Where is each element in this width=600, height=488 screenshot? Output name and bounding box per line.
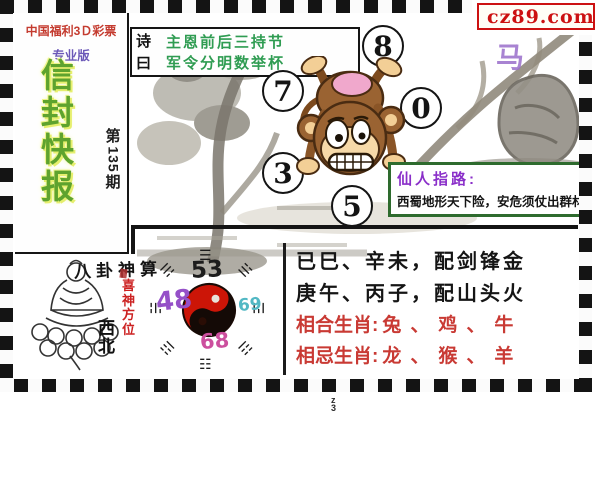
bagua-diagram: ☰ ☱ ☲ ☳ ☷ ☶ ☵ ☴ 53 48 69 68 [149,253,269,378]
bagua-number-bottom: 68 [199,328,230,354]
trigram-topright-icon: ☱ [236,261,255,280]
pairs-text-block: 已巳、辛未，配剑锋金 庚午、丙子，配山头火 相合生肖:兔、鸡、牛 相忌生肖:龙、… [296,246,578,372]
pointer-box: 仙人指路: 西蜀地形天下险，安危须仗出群材 [388,162,589,217]
frame-border-left [0,0,13,392]
trigram-bottomright-icon: ☳ [236,339,255,358]
stem-branch-line-1: 已巳、辛未，配剑锋金 [296,246,578,278]
issue-value: 135 [105,146,122,172]
org-name: 中国福利3Ｄ彩票 [15,22,127,39]
frame-border-right [579,0,592,392]
poem-line-1: 主恩前后三持节 [166,32,358,53]
lucky-direction-label: 喜神方位 [122,279,137,337]
stem-branch-line-2: 庚午、丙子，配山头火 [296,278,578,310]
purple-watermark-char: 马 [496,36,524,76]
pointer-title: 仙人指路: [397,168,582,189]
trigram-bottom-icon: ☷ [199,357,212,371]
lucky-direction-value: 西北 [98,320,117,356]
trigram-topleft-icon: ☴ [158,261,177,280]
incompatible-values: 龙、猴、羊 [382,346,522,367]
sheet-title: 信封快报 [41,57,78,205]
sidebar: 中国福利3Ｄ彩票 专业版 信封快报 第 135 期 [15,13,129,254]
bagua-number-top: 53 [190,256,223,284]
site-logo-text: cz89.com [487,6,595,28]
lottery-tip-sheet: 马 中国福利3Ｄ彩票 专业版 信封快报 第 135 期 诗曰 主恩前后三持节 军… [0,0,600,488]
compatible-zodiac-line: 相合生肖:兔、鸡、牛 [296,310,578,341]
compatible-label: 相合生肖: [296,315,378,336]
issue-suffix: 期 [105,174,120,191]
incompatible-zodiac-line: 相忌生肖:龙、猴、羊 [296,341,578,372]
circle-number: 3 [273,157,292,190]
issue-number: 第 135 期 [103,128,123,191]
site-logo[interactable]: cz89.com [477,3,595,30]
panel-vertical-divider [283,243,286,375]
circle-number: 0 [411,92,430,125]
footer-mark: z3 [331,396,340,412]
compatible-values: 兔、鸡、牛 [382,315,522,336]
panel-corner-connector [131,225,135,254]
bagua-number-left: 48 [155,284,194,318]
frame-border-bottom [0,379,592,392]
circle-number: 5 [342,190,361,223]
number-circle-5: 5 [331,185,373,227]
trigram-bottomleft-icon: ☶ [158,339,177,358]
incompatible-label: 相忌生肖: [296,346,378,367]
circle-number: 7 [273,75,292,108]
poem-label: 诗曰 [132,29,160,75]
pointer-text: 西蜀地形天下险，安危须仗出群材 [397,191,582,210]
red-seal-mark [119,269,127,279]
issue-prefix: 第 [105,128,120,145]
bagua-number-right: 69 [237,294,262,316]
